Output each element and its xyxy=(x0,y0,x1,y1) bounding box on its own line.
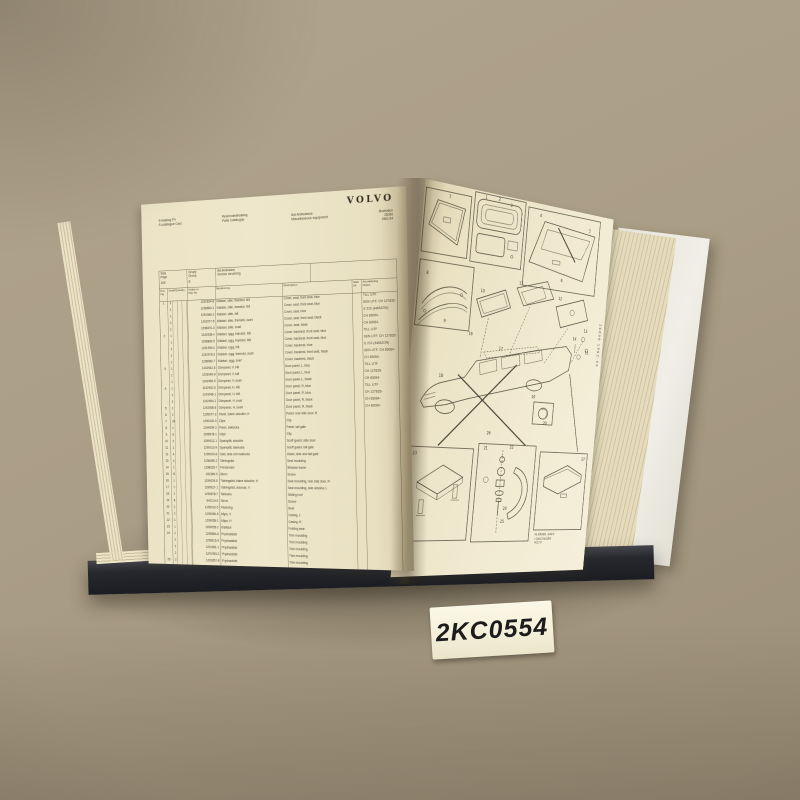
exploded-diagram: 1234567891011121314151617181920212223242… xyxy=(391,179,614,577)
diagram-caption: KLÄDSEL SATSI DAG INGÅRHÖJ V xyxy=(534,532,581,545)
diagram-box-door-panel xyxy=(421,187,472,258)
svg-text:23: 23 xyxy=(412,450,418,455)
svg-text:1: 1 xyxy=(485,195,488,201)
svg-text:15: 15 xyxy=(585,351,589,356)
svg-text:8: 8 xyxy=(426,270,429,276)
svg-text:14: 14 xyxy=(573,336,578,341)
svg-text:16: 16 xyxy=(468,331,473,337)
inventory-code: 2KC0554 xyxy=(435,612,549,648)
svg-text:24: 24 xyxy=(502,506,507,511)
svg-text:13: 13 xyxy=(584,329,588,334)
model-years: 1962-64 xyxy=(379,217,393,222)
svg-text:10: 10 xyxy=(481,288,486,294)
svg-text:9: 9 xyxy=(443,318,446,323)
catalog-title-en: S-catalogue Cars xyxy=(159,222,182,227)
doc-title-en: Parts Catalogue xyxy=(222,218,248,224)
col-qty: Antal/Quantity xyxy=(167,288,187,301)
svg-text:12: 12 xyxy=(558,296,563,301)
svg-text:21: 21 xyxy=(483,445,488,450)
page-header: S-katalog PV S-catalogue Cars Reservdels… xyxy=(141,186,407,272)
svg-text:5: 5 xyxy=(589,229,592,234)
svg-text:27: 27 xyxy=(581,457,585,462)
diagram-callout-numbers: 1234567891011121314151617181920212223242… xyxy=(404,183,606,525)
svg-text:6: 6 xyxy=(560,278,563,283)
catalog-left-page: S-katalog PV S-catalogue Cars Reservdels… xyxy=(141,186,414,571)
volvo-logo: VOLVO xyxy=(347,192,394,206)
inventory-label: 2KC0554 xyxy=(430,600,555,659)
parts-table: Sida Page Grupp Group Äst Ambulans Diver… xyxy=(159,259,405,571)
col-part: Artikel nr Part No xyxy=(187,287,215,301)
col-kit: Sats Kit xyxy=(352,280,362,293)
svg-text:4: 4 xyxy=(540,213,543,218)
svg-text:25: 25 xyxy=(500,519,505,524)
svg-text:19: 19 xyxy=(531,394,536,399)
svg-text:17: 17 xyxy=(499,346,504,351)
table-rows: 111292834-8Klädsel, säte, framstol, blåC… xyxy=(160,292,404,571)
svg-text:7: 7 xyxy=(449,194,452,200)
photo-scene: S-katalog PV S-catalogue Cars Reservdels… xyxy=(0,0,800,800)
svg-text:18: 18 xyxy=(439,373,444,378)
table-row: 1241299024-8Glas, sida och bakluckaGlass… xyxy=(163,452,401,459)
diagram-box-armrest xyxy=(534,452,588,530)
svg-text:26: 26 xyxy=(486,430,491,435)
svg-text:22: 22 xyxy=(509,445,514,450)
catalog-right-page: 1234567891011121314151617181920212223242… xyxy=(391,179,614,577)
